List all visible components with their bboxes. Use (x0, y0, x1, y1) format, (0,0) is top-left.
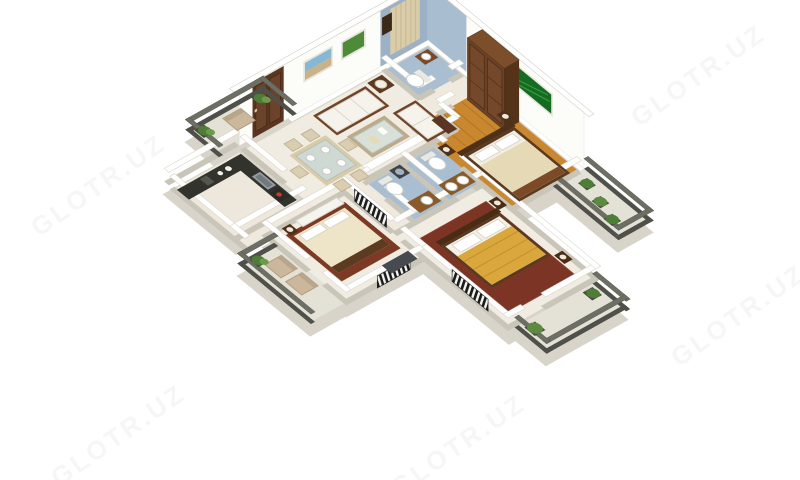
floor-plan-svg (0, 0, 800, 480)
floor-plan-render: GLOTR.UZ GLOTR.UZ GLOTR.UZ GLOTR.UZ GLOT… (0, 0, 800, 480)
